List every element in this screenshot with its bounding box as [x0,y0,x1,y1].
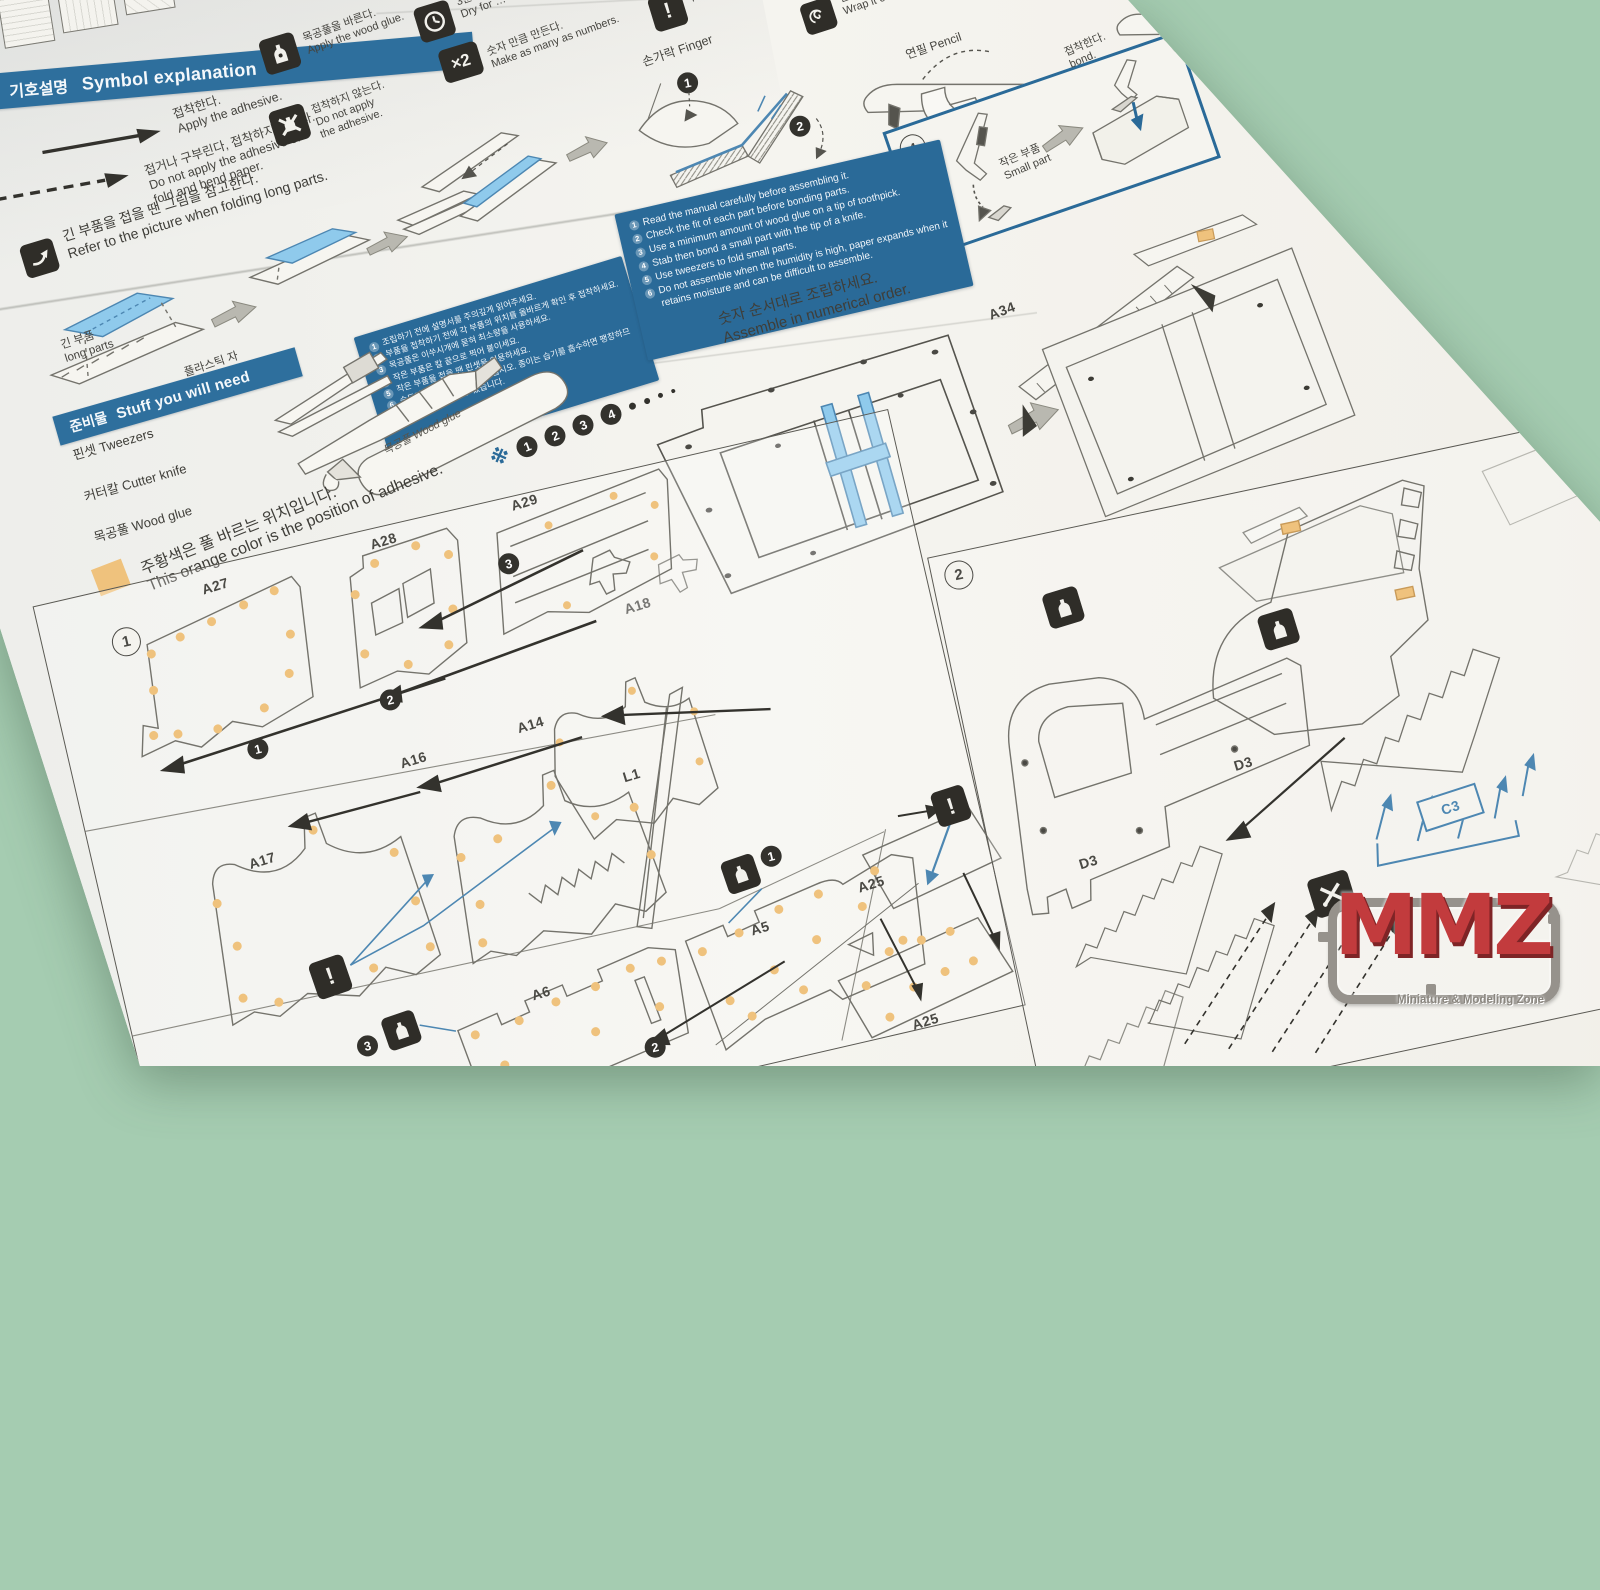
banner-korean: 기호설명 [8,73,69,102]
sprue-sheet [50,0,119,33]
mmz-tagline: Miniature & Modeling Zone [1397,994,1544,1006]
x2-symbol: ×2 [449,50,473,75]
sheet-surface: 기호설명 Symbol explanation 접착한다. Apply the … [0,0,1600,1590]
sprue-sheet [115,0,175,15]
mmz-sprue-stub [1318,932,1332,942]
step1-panel: 1 1 2 3 ! 3 1 2 ! A27 A28 A29 A17 A16 A1… [33,409,1026,1203]
cutter-label: 커터칼 Cutter knife [82,461,188,506]
mmz-logo-text: MMZ [1334,876,1550,974]
parts-label-b: 부품 parts [1211,39,1265,70]
step1-art [34,410,1025,1201]
mmz-watermark: MMZ Miniature & Modeling Zone [1322,884,1558,1020]
part-label-c3: C3 [1439,797,1462,818]
photo-scene: 기호설명 Symbol explanation 접착한다. Apply the … [0,0,1600,1066]
tools-banner-korean: 준비물 [67,407,110,437]
sprue-sheet [0,0,55,49]
